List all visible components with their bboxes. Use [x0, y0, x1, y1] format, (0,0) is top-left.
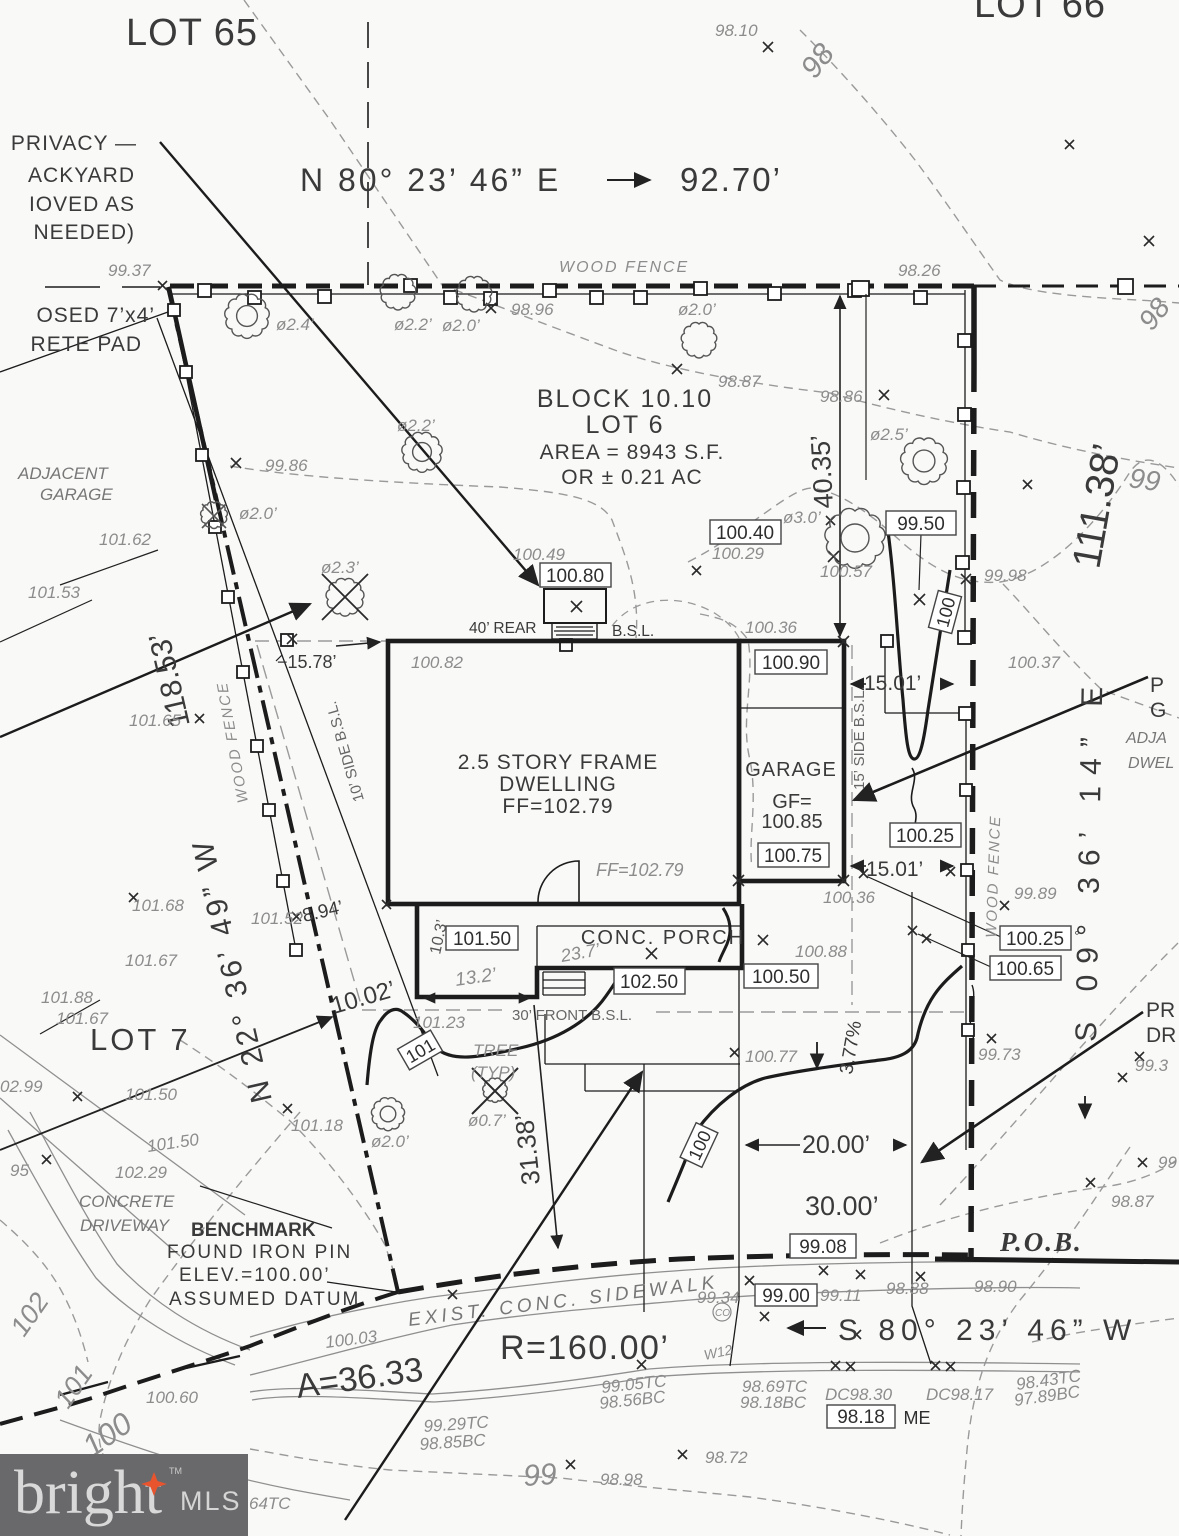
svg-text:100.50: 100.50: [752, 967, 810, 988]
svg-text:30.00’: 30.00’: [805, 1191, 879, 1221]
svg-text:98.87: 98.87: [718, 372, 761, 391]
svg-text:GARAGE: GARAGE: [745, 759, 837, 781]
svg-text:(TYP): (TYP): [471, 1063, 515, 1082]
svg-text:101.68: 101.68: [132, 896, 185, 915]
svg-text:100.80: 100.80: [546, 566, 604, 587]
svg-text:101.65: 101.65: [129, 711, 182, 730]
svg-text:100.88: 100.88: [795, 942, 848, 961]
svg-text:FOUND IRON PIN: FOUND IRON PIN: [167, 1242, 352, 1263]
svg-text:98.90: 98.90: [974, 1277, 1017, 1296]
svg-text:WOOD FENCE: WOOD FENCE: [559, 259, 689, 276]
svg-text:98.88: 98.88: [886, 1279, 929, 1298]
svg-text:98.10: 98.10: [715, 21, 758, 40]
svg-text:PRIVACY —: PRIVACY —: [11, 132, 137, 155]
svg-text:100.29: 100.29: [712, 544, 765, 563]
svg-text:15’ SIDE B.S.L.: 15’ SIDE B.S.L.: [851, 686, 868, 790]
svg-text:FF=102.79: FF=102.79: [596, 860, 684, 880]
svg-text:101.67: 101.67: [56, 1009, 109, 1028]
svg-text:ø2.2’: ø2.2’: [397, 416, 435, 435]
svg-text:LOT 65: LOT 65: [126, 12, 258, 54]
svg-text:101.88: 101.88: [41, 988, 94, 1007]
svg-text:99: 99: [522, 1458, 558, 1493]
svg-text:101.50: 101.50: [453, 929, 511, 950]
svg-text:NEEDED): NEEDED): [33, 221, 135, 244]
svg-text:101.23: 101.23: [413, 1013, 466, 1032]
svg-text:RETE PAD: RETE PAD: [31, 333, 142, 356]
svg-text:R=160.00’: R=160.00’: [500, 1329, 669, 1367]
svg-text:DWELLING: DWELLING: [499, 773, 617, 796]
svg-text:2.5 STORY FRAME: 2.5 STORY FRAME: [458, 751, 659, 774]
svg-text:OR ± 0.21 AC: OR ± 0.21 AC: [561, 466, 702, 489]
svg-text:MLS: MLS: [180, 1486, 242, 1516]
svg-text:99.34: 99.34: [697, 1288, 740, 1307]
svg-text:100.77: 100.77: [745, 1047, 798, 1066]
svg-text:S 09° 36’ 14” E: S 09° 36’ 14” E: [1070, 676, 1109, 1043]
svg-text:100.57: 100.57: [820, 562, 873, 581]
svg-text:100.85: 100.85: [761, 811, 822, 833]
svg-text:98.26: 98.26: [898, 261, 941, 280]
svg-text:98.87: 98.87: [1111, 1192, 1154, 1211]
svg-text:40’ REAR: 40’ REAR: [469, 620, 536, 637]
svg-text:100.37: 100.37: [1008, 653, 1061, 672]
svg-text:DC98.30: DC98.30: [825, 1385, 893, 1404]
svg-text:95: 95: [10, 1161, 29, 1180]
svg-text:ø2.0’: ø2.0’: [239, 504, 277, 523]
svg-text:ø2.0’: ø2.0’: [678, 300, 716, 319]
svg-text:100.40: 100.40: [716, 523, 774, 544]
svg-text:20.00’: 20.00’: [802, 1131, 870, 1159]
svg-text:99: 99: [1127, 462, 1162, 497]
svg-text:100.65: 100.65: [996, 959, 1054, 980]
svg-text:101.53: 101.53: [28, 583, 81, 602]
svg-text:99.73: 99.73: [978, 1045, 1021, 1064]
svg-text:ø2.0’: ø2.0’: [371, 1132, 409, 1151]
svg-text:DC98.17: DC98.17: [926, 1385, 994, 1404]
svg-text:S 80° 23’ 46” W: S 80° 23’ 46” W: [838, 1314, 1137, 1347]
svg-text:02.99: 02.99: [0, 1077, 43, 1096]
svg-text:99.08: 99.08: [799, 1237, 847, 1258]
svg-text:ø2.4’: ø2.4’: [276, 315, 314, 334]
svg-text:AREA = 8943 S.F.: AREA = 8943 S.F.: [540, 441, 725, 464]
svg-text:ASSUMED DATUM: ASSUMED DATUM: [169, 1289, 360, 1310]
svg-text:G: G: [1150, 699, 1166, 722]
svg-text:OSED 7’x4’: OSED 7’x4’: [36, 304, 155, 327]
svg-text:100.82: 100.82: [411, 653, 464, 672]
svg-text:99.00: 99.00: [762, 1286, 810, 1307]
svg-text:TM: TM: [169, 1466, 182, 1476]
svg-text:ADJA: ADJA: [1125, 730, 1167, 747]
svg-text:100.25: 100.25: [1006, 929, 1064, 950]
svg-text:B.S.L.: B.S.L.: [612, 623, 654, 640]
svg-text:98.86: 98.86: [820, 387, 863, 406]
svg-text:ø3.0’: ø3.0’: [783, 508, 821, 527]
svg-text:BLOCK 10.10: BLOCK 10.10: [537, 385, 713, 413]
svg-text:100.36: 100.36: [745, 618, 798, 637]
svg-text:101.62: 101.62: [99, 530, 152, 549]
svg-text:101.67: 101.67: [125, 951, 178, 970]
svg-text:101.52: 101.52: [251, 909, 304, 928]
svg-text:100.25: 100.25: [896, 826, 954, 847]
svg-text:P.O.B.: P.O.B.: [999, 1227, 1083, 1257]
svg-text:99.98: 99.98: [984, 566, 1027, 585]
svg-text:92.70’: 92.70’: [680, 161, 782, 198]
svg-text:GF=: GF=: [772, 791, 811, 813]
svg-text:102.50: 102.50: [620, 972, 678, 993]
svg-text:100.49: 100.49: [513, 545, 566, 564]
svg-text:IOVED AS: IOVED AS: [29, 193, 135, 216]
svg-text:99.3: 99.3: [1135, 1056, 1169, 1075]
svg-text:ø2.5’: ø2.5’: [870, 425, 908, 444]
svg-text:100.36: 100.36: [823, 888, 876, 907]
svg-text:100.60: 100.60: [146, 1388, 199, 1407]
svg-text:ACKYARD: ACKYARD: [28, 164, 135, 187]
svg-text:99.86: 99.86: [265, 456, 308, 475]
svg-text:98.18BC: 98.18BC: [740, 1393, 807, 1412]
svg-text:99: 99: [1158, 1153, 1177, 1172]
svg-text:15.01’: 15.01’: [864, 672, 921, 695]
svg-text:99.50: 99.50: [897, 514, 945, 535]
svg-text:DRIVEWAY: DRIVEWAY: [80, 1216, 171, 1235]
svg-text:GARAGE: GARAGE: [40, 485, 113, 504]
svg-text:99.11: 99.11: [820, 1286, 861, 1305]
svg-text:BENCHMARK: BENCHMARK: [191, 1220, 316, 1241]
svg-text:CO: CO: [715, 1308, 730, 1319]
svg-text:98.98: 98.98: [600, 1470, 643, 1489]
svg-text:bright: bright: [14, 1459, 162, 1527]
svg-text:ø2.2’: ø2.2’: [394, 315, 432, 334]
svg-text:LOT 66: LOT 66: [974, 0, 1106, 26]
svg-text:ø2.0’: ø2.0’: [442, 316, 480, 335]
svg-text:98.18: 98.18: [837, 1407, 885, 1428]
svg-text:ADJACENT: ADJACENT: [17, 464, 109, 483]
svg-text:N 80° 23’ 46” E: N 80° 23’ 46” E: [300, 162, 561, 198]
svg-text:64TC: 64TC: [249, 1494, 291, 1513]
svg-text:ø0.7’: ø0.7’: [468, 1111, 506, 1130]
svg-text:FF=102.79: FF=102.79: [502, 795, 613, 818]
svg-text:DWEL: DWEL: [1128, 755, 1174, 772]
svg-text:98.72: 98.72: [705, 1448, 748, 1467]
svg-text:40.35’: 40.35’: [805, 434, 839, 509]
svg-text:PR: PR: [1146, 999, 1175, 1022]
svg-text:CONCRETE: CONCRETE: [79, 1192, 175, 1211]
svg-text:99.89: 99.89: [1014, 884, 1057, 903]
svg-text:−15.78’: −15.78’: [277, 652, 337, 672]
svg-text:P: P: [1150, 674, 1164, 697]
svg-text:TREE: TREE: [473, 1041, 519, 1060]
svg-text:30’ FRONT B.S.L.: 30’ FRONT B.S.L.: [512, 1007, 632, 1024]
svg-text:100.75: 100.75: [764, 846, 822, 867]
svg-text:DR: DR: [1146, 1024, 1176, 1047]
svg-text:99.37: 99.37: [108, 261, 151, 280]
svg-text:100.90: 100.90: [762, 653, 820, 674]
svg-text:ø2.3’: ø2.3’: [321, 558, 359, 577]
svg-text:98.96: 98.96: [511, 300, 554, 319]
svg-text:102.29: 102.29: [115, 1163, 168, 1182]
svg-text:ME: ME: [904, 1408, 931, 1428]
svg-text:15.01’: 15.01’: [866, 858, 923, 881]
svg-text:CONC. PORCH: CONC. PORCH: [581, 927, 745, 949]
svg-text:101.50: 101.50: [125, 1085, 178, 1104]
svg-text:ELEV.=100.00’: ELEV.=100.00’: [179, 1265, 331, 1286]
svg-text:LOT 6: LOT 6: [585, 411, 664, 439]
svg-text:101.18: 101.18: [291, 1116, 344, 1135]
